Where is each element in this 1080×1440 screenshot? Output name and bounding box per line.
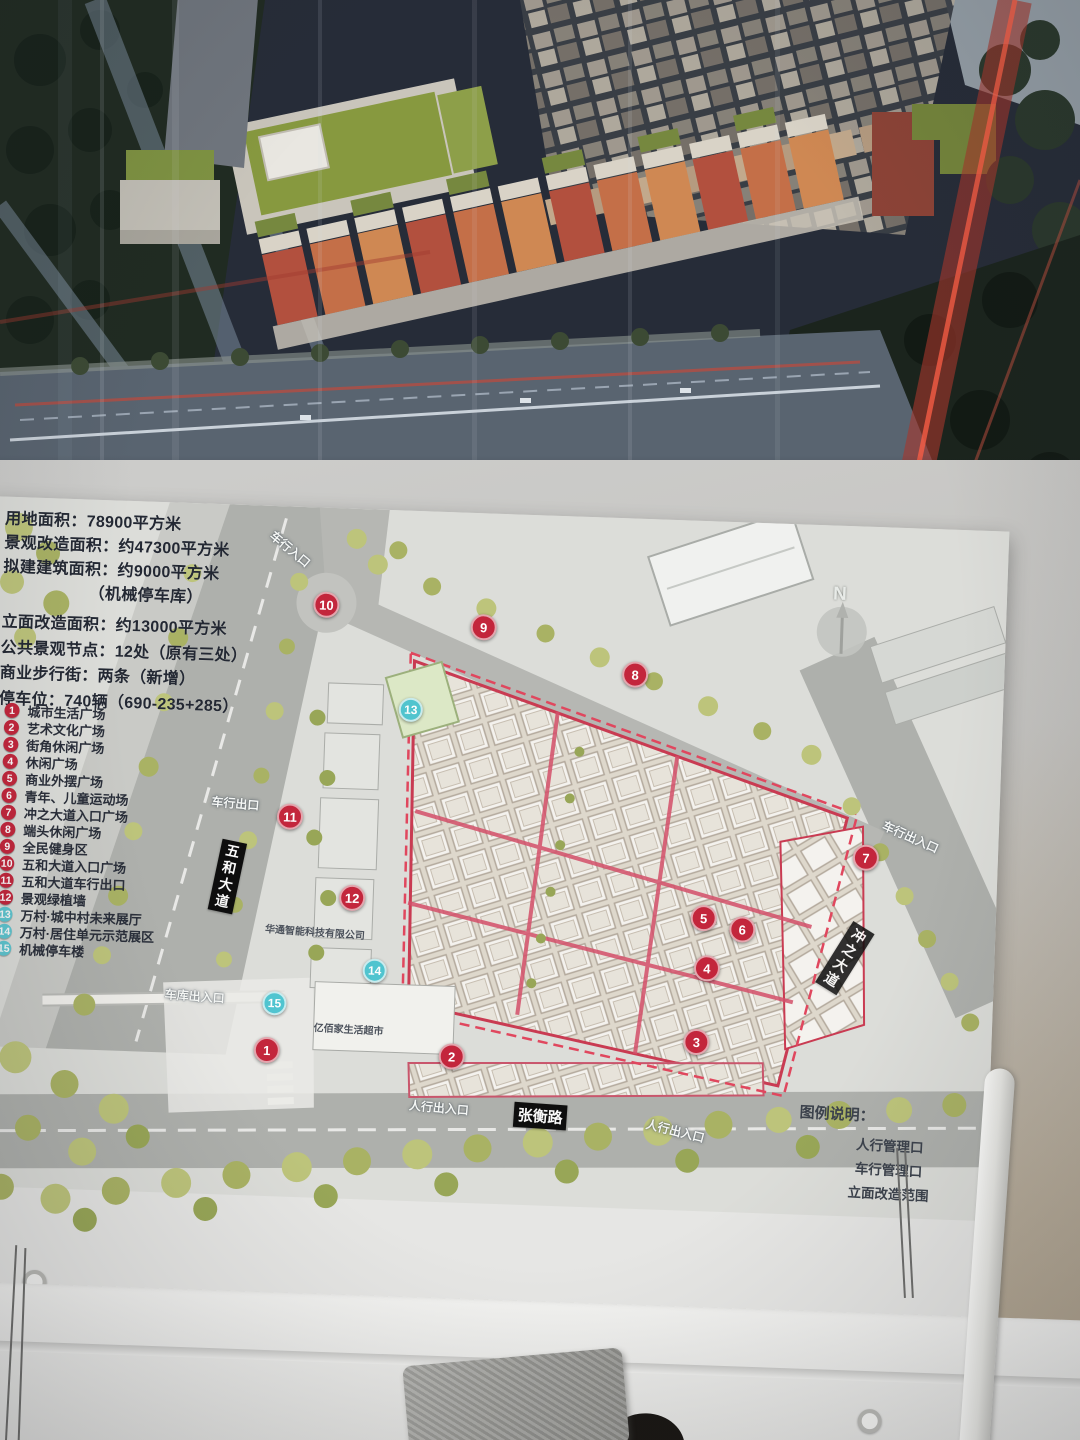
legend-badge: 1 [4, 703, 20, 719]
legend-notes: 图例说明： 人行管理口 车行管理口 立面改造范围 [795, 1101, 980, 1211]
legend-badge: 11 [0, 873, 14, 889]
road-name-zhangheng: 张衡路 [513, 1102, 568, 1131]
site-plan-board: 用地面积：78900平方米 景观改造面积：约47300平方米 拟建建筑面积：约9… [0, 496, 1009, 1326]
legend-badge: 15 [0, 940, 11, 956]
legend-badge: 4 [2, 754, 18, 770]
display-board-photo: 用地面积：78900平方米 景观改造面积：约47300平方米 拟建建筑面积：约9… [0, 0, 1080, 1440]
aerial-rendering [0, 0, 1080, 530]
supermarket-building [313, 982, 455, 1055]
compass-n-label: N [833, 583, 847, 605]
legend-badge: 10 [0, 856, 14, 872]
stand-grommet-right [857, 1409, 882, 1434]
legend-badge: 8 [0, 822, 16, 838]
legend-badge: 14 [0, 924, 12, 940]
legend-label: 机械停车楼 [19, 939, 85, 960]
map-legend: 1城市生活广场 2艺术文化广场 3街角休闲广场 4休闲广场 5商业外摆广场 6青… [0, 702, 235, 970]
stat-line: （机械停车库） [88, 580, 203, 608]
legend-badge: 9 [0, 839, 15, 855]
left-green-roof-building [120, 150, 220, 244]
legend-badge: 2 [4, 720, 20, 736]
legend-badge: 12 [0, 890, 13, 906]
legend-badge: 7 [1, 805, 17, 821]
legend-badge: 13 [0, 907, 13, 923]
legend-badge: 3 [3, 737, 19, 753]
legend-badge: 6 [1, 788, 17, 804]
legend-badge: 5 [2, 771, 18, 787]
